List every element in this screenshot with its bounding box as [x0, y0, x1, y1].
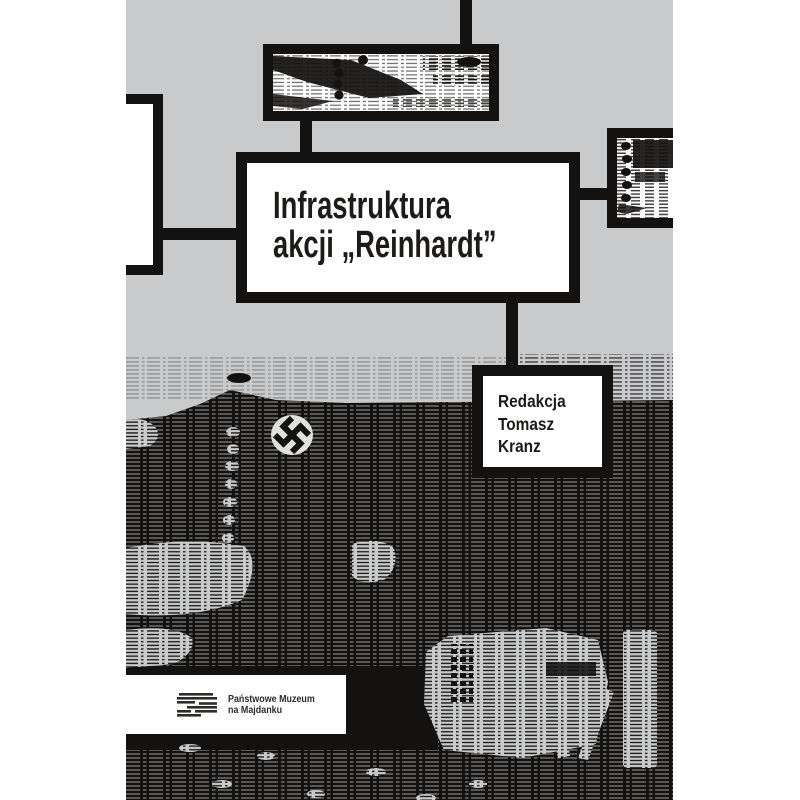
- editor-role: Redakcja: [498, 390, 590, 413]
- photo-box-right: [607, 128, 673, 228]
- connector-title-to-right-photo: [580, 188, 608, 200]
- majdanek-logo-icon: [177, 693, 217, 717]
- connector-photo-to-title: [300, 120, 312, 153]
- editor-last-name: Kranz: [498, 435, 590, 458]
- connector-top-edge: [460, 0, 472, 45]
- swastika-banner-emblem: [271, 415, 313, 455]
- photo-box-top: [263, 44, 499, 121]
- halftone-archive-photo-strip-icon: [617, 138, 673, 218]
- decorative-box-left: [126, 94, 163, 275]
- publisher-name-line2: na Majdanku: [228, 705, 315, 716]
- book-title: Infrastruktura akcji „Reinhardt”: [273, 187, 486, 264]
- editor-box: Redakcja Tomasz Kranz: [472, 365, 613, 478]
- editor-first-name: Tomasz: [498, 413, 590, 436]
- book-title-line1: Infrastruktura: [273, 187, 486, 226]
- halftone-archive-photo-strip-icon: [273, 54, 489, 111]
- book-title-line2: akcji „Reinhardt”: [273, 226, 486, 265]
- product-page: Infrastruktura akcji „Reinhardt” Redakcj…: [0, 0, 800, 800]
- connector-left-box-to-title: [163, 228, 236, 240]
- editor-credit: Redakcja Tomasz Kranz: [498, 390, 590, 458]
- publisher-name-line1: Państwowe Muzeum: [228, 694, 315, 705]
- publisher-box: Państwowe Muzeum na Majdanku: [126, 675, 346, 734]
- title-box: Infrastruktura akcji „Reinhardt”: [236, 152, 580, 303]
- book-cover: Infrastruktura akcji „Reinhardt” Redakcj…: [126, 0, 673, 800]
- publisher-name: Państwowe Muzeum na Majdanku: [228, 694, 315, 715]
- connector-title-to-editor: [506, 303, 518, 366]
